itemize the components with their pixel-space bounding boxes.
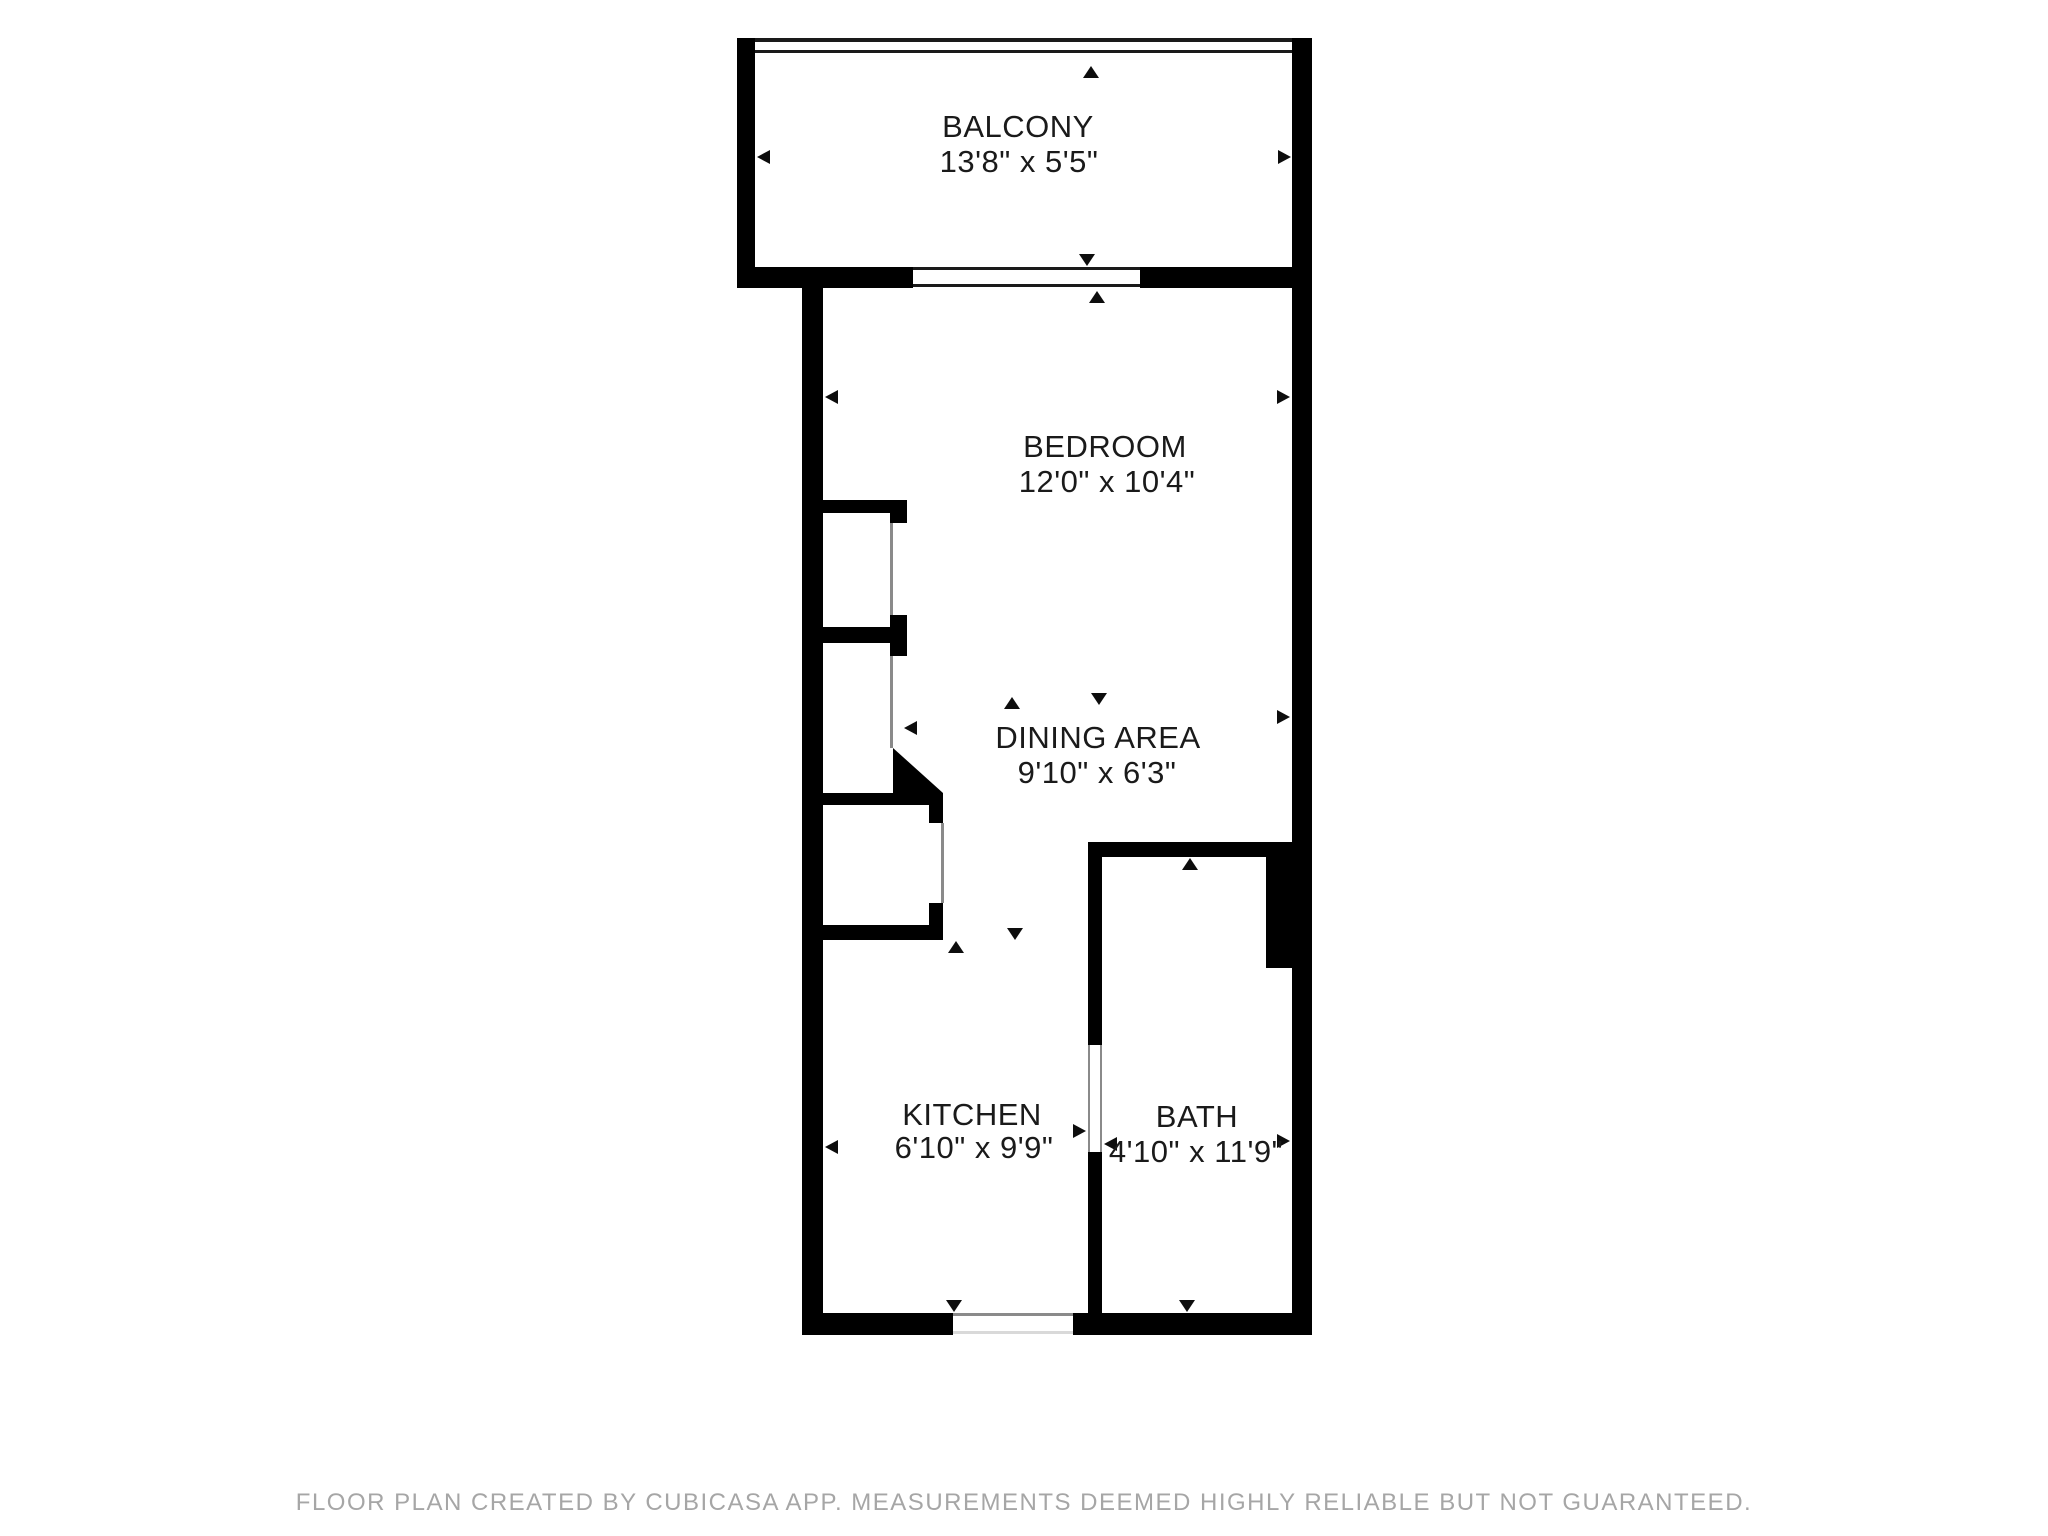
kitchen-depth-arrow-up-icon: [948, 941, 964, 953]
bath-dimensions: 4'10" x 11'9": [1109, 1134, 1283, 1169]
kitchen-top-wall: [802, 925, 943, 940]
balcony-depth-arrow-down-icon: [1079, 254, 1095, 266]
balcony-railing-inner-line: [737, 50, 1312, 53]
closet2-bottom-wall: [802, 793, 943, 805]
kitchen-bath-wall-lower: [1088, 1152, 1102, 1335]
bedroom-depth-arrow-down-icon: [1091, 693, 1107, 705]
bath-label: BATH: [1156, 1099, 1238, 1134]
footer-disclaimer: FLOOR PLAN CREATED BY CUBICASA APP. MEAS…: [296, 1489, 1752, 1516]
balcony-width-arrow-left-icon: [757, 150, 770, 164]
bedroom-dimensions: 12'0" x 10'4": [1019, 464, 1196, 499]
kitchen-width-arrow-right-icon: [1073, 1124, 1086, 1138]
closet3-door-jamb-top: [929, 805, 943, 823]
bedroom-width-arrow-right-icon: [1277, 390, 1290, 404]
entry-door-threshold-top-line: [953, 1313, 1073, 1316]
bottom-wall-left: [802, 1313, 953, 1335]
bath-door-line-right: [1100, 1045, 1102, 1152]
floor-plan-canvas: BALCONY 13'8" x 5'5" BEDROOM 12'0" x 10'…: [0, 0, 2048, 1536]
balcony-dimensions: 13'8" x 5'5": [940, 144, 1099, 179]
closet1-door-line: [890, 523, 893, 615]
closet2-door-jamb-top: [890, 643, 907, 656]
dining-area-dimensions: 9'10" x 6'3": [1018, 755, 1177, 790]
bath-depth-arrow-up-icon: [1182, 858, 1198, 870]
dining-depth-arrow-up-icon: [1004, 697, 1020, 709]
kitchen-depth-arrow-down-icon: [946, 1300, 962, 1312]
balcony-bottom-wall-left: [737, 267, 913, 288]
balcony-railing-outer-line: [737, 38, 1312, 42]
kitchen-dimensions: 6'10" x 9'9": [895, 1130, 1054, 1165]
bath-depth-arrow-down-icon: [1179, 1300, 1195, 1312]
balcony-label: BALCONY: [942, 109, 1094, 144]
dining-depth-arrow-down-icon: [1007, 928, 1023, 940]
closet3-door-jamb-bottom: [929, 903, 943, 925]
dining-area-label: DINING AREA: [995, 720, 1200, 755]
floor-plan-drawing: BALCONY 13'8" x 5'5" BEDROOM 12'0" x 10'…: [0, 0, 2048, 1536]
dining-width-arrow-right-icon: [1277, 710, 1290, 724]
kitchen-label: KITCHEN: [902, 1097, 1042, 1132]
balcony-left-wall: [737, 38, 755, 288]
bath-top-wall: [1088, 842, 1292, 857]
right-exterior-wall: [1292, 38, 1312, 1335]
closet2-door-line: [890, 656, 893, 748]
balcony-depth-arrow-up-icon: [1083, 66, 1099, 78]
closet3-door-line: [941, 823, 944, 903]
balcony-door-threshold-bottom-line: [913, 284, 1140, 287]
bedroom-label: BEDROOM: [1023, 429, 1187, 464]
entry-door-threshold-bottom-line: [953, 1331, 1073, 1334]
closet1-closet2-divider-wall: [802, 627, 907, 643]
balcony-bottom-wall-right: [1140, 267, 1292, 288]
dining-width-arrow-left-icon: [904, 721, 917, 735]
bedroom-width-arrow-left-icon: [825, 390, 838, 404]
closet1-door-jamb-top: [890, 500, 907, 523]
bottom-wall-right: [1073, 1313, 1312, 1335]
closet2-angled-wall: [893, 748, 943, 793]
kitchen-width-arrow-left-icon: [825, 1140, 838, 1154]
bath-door-line-left: [1088, 1045, 1090, 1152]
kitchen-bath-wall-upper: [1088, 842, 1102, 1045]
balcony-width-arrow-right-icon: [1278, 150, 1291, 164]
balcony-door-threshold-top-line: [913, 267, 1140, 270]
bedroom-depth-arrow-up-icon: [1089, 291, 1105, 303]
bath-duct-column: [1266, 842, 1292, 968]
